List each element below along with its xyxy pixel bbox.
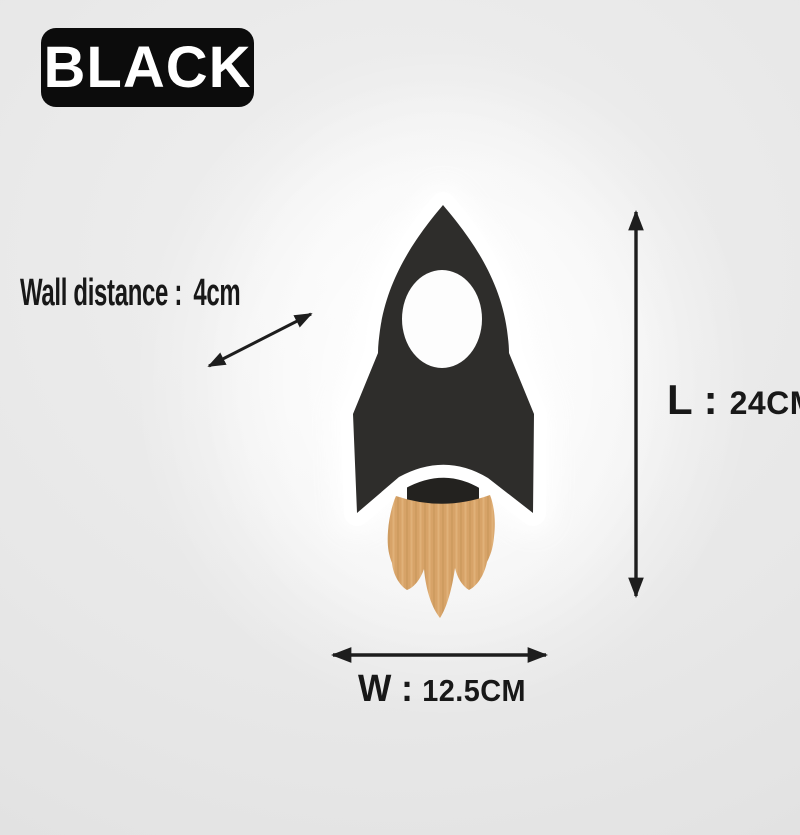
wall-distance-value: 4cm: [193, 272, 240, 315]
color-variant-badge: BLACK: [41, 28, 254, 107]
length-value: 24CM: [730, 385, 800, 422]
length-annotation: L : 24CM: [667, 376, 800, 424]
wall-distance-label: Wall distance :: [20, 272, 182, 315]
length-label: L :: [667, 376, 718, 424]
color-variant-label: BLACK: [44, 34, 252, 101]
width-annotation: W : 12.5CM: [358, 668, 526, 711]
width-value: 12.5CM: [422, 673, 526, 709]
rocket-window: [402, 270, 482, 368]
width-label: W :: [358, 668, 413, 711]
product-image: BLACK Wall distance : 4cm L : 24CM W : 1…: [0, 0, 800, 835]
wall-distance-annotation: Wall distance : 4cm: [20, 272, 240, 315]
